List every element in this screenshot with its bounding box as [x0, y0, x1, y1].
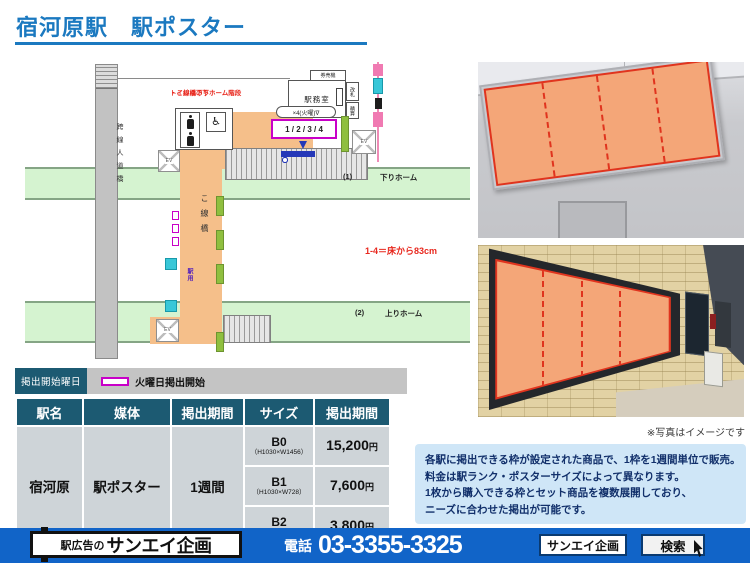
arrow-down-icon: [299, 141, 307, 149]
floor-signboard: [704, 350, 723, 387]
price-unit: 円: [369, 442, 378, 452]
station-use-label: 駅用: [185, 268, 194, 282]
poster-chip-cyan: [373, 78, 383, 94]
header-period: 掲出期間: [172, 399, 243, 425]
table-header-row: 駅名 媒体 掲出期間 サイズ 掲出期間: [17, 399, 389, 425]
bench-green: [216, 332, 224, 352]
bench-green: [216, 196, 224, 216]
brand-name: サンエイ企画: [107, 532, 212, 558]
overpass-label: 跨線人道橋: [103, 123, 124, 188]
poster-chip-pink: [373, 64, 383, 76]
third-poster-case: [715, 301, 731, 348]
restroom-box: [180, 112, 200, 148]
header-media: 媒体: [84, 399, 170, 425]
female-icon: [187, 132, 194, 146]
photo-brick-wall: [478, 245, 744, 417]
info-line: 料金は駅ランク・ポスターサイズによって異なります。: [425, 469, 736, 486]
frame-count-label: ×4(火曜)∇: [276, 106, 336, 118]
legend-item-label: 火曜日掲出開始: [135, 374, 205, 389]
poster-slot-magenta: [172, 211, 179, 220]
poster-chip-pink: [373, 112, 383, 127]
male-icon: [187, 115, 194, 129]
toilet-note-line2: ・こ線橋の下: [170, 89, 209, 98]
header-size: サイズ: [245, 399, 313, 425]
brand-prefix: 駅広告の: [61, 537, 105, 553]
elevator-icon: EV: [156, 319, 179, 342]
info-line: 各駅に掲出できる枠が設定された商品で、1枠を1週間単位で販売。: [425, 452, 736, 469]
wall-line: [117, 78, 290, 79]
magenta-swatch: [101, 377, 129, 386]
size-name: B1: [246, 476, 312, 489]
phone-block: 電話 03-3355-3325: [284, 528, 462, 563]
search-input[interactable]: [539, 534, 627, 556]
height-note: 1-4＝床から83cm: [365, 244, 437, 257]
header-station: 駅名: [17, 399, 82, 425]
fence-bar: [341, 116, 349, 152]
platform-down-number: (1): [343, 172, 352, 181]
header-price: 掲出期間: [315, 399, 389, 425]
panel-divider: [651, 68, 665, 161]
bench-green: [216, 230, 224, 250]
platform-up-label: 上りホーム: [385, 308, 422, 319]
price-cell: 7,600円: [315, 467, 389, 505]
gate-box: 改札: [346, 82, 359, 101]
phone-number: 03-3355-3325: [318, 531, 462, 560]
photo-caption: ※写真はイメージです: [560, 424, 745, 439]
stairs-lower: [223, 315, 271, 343]
panel-divider: [541, 83, 555, 176]
price-value: 15,200: [326, 437, 369, 453]
poster-frame-marker: 1 / 2 / 3 / 4: [271, 119, 337, 139]
price-unit: 円: [365, 482, 374, 492]
small-red-poster: [710, 314, 716, 329]
info-line: ニーズに合わせた掲出が可能です。: [425, 502, 736, 519]
board-orange-area: [486, 62, 718, 183]
legend-title: 掲出開始曜日: [15, 368, 87, 394]
floor: [616, 379, 744, 417]
station-map: 跨線人道橋 EV EV EV 駅務室 券売機 改札 精算 ×4(火曜)∇ 1 /…: [25, 56, 470, 368]
price-table: 駅名 媒体 掲出期間 サイズ 掲出期間 宿河原 駅ポスター 1週間 B0 （H1…: [15, 397, 391, 547]
size-cell: B1 （H1030×W728）: [245, 467, 313, 505]
poster-slot-cyan: [165, 300, 177, 312]
panel-divider: [596, 76, 610, 169]
size-name: B0: [246, 436, 312, 449]
accessible-icon: ♿: [206, 112, 226, 132]
bridge-label: こ線橋: [199, 194, 210, 239]
bench-green: [216, 264, 224, 284]
poster-chip-dark: [375, 98, 382, 109]
elevator-icon: EV: [352, 130, 376, 154]
price-cell: 15,200円: [315, 427, 389, 465]
platform-down-label: 下りホーム: [380, 172, 417, 183]
title-underline: [15, 42, 367, 45]
phone-label: 電話: [284, 536, 312, 556]
poster-slot-magenta: [172, 237, 179, 246]
ticket-machine-box: 券売機: [310, 70, 346, 81]
overpass-stairs: [96, 65, 117, 89]
size-dims: （H1030×W1456）: [246, 449, 312, 456]
wall-door: [558, 201, 627, 238]
toilet-block: ♿: [175, 108, 233, 150]
table-row: 宿河原 駅ポスター 1週間 B0 （H1030×W1456） 15,200円: [17, 427, 389, 465]
photo-station-wall: [478, 62, 744, 238]
page: 宿河原駅 駅ポスター 跨線人道橋 EV EV EV 駅務室 券売機 改札 精算 …: [0, 0, 750, 563]
brand-signboard: 駅広告の サンエイ企画: [30, 531, 242, 558]
legend-bar: 掲出開始曜日 火曜日掲出開始: [15, 368, 407, 394]
product-info-box: 各駅に掲出できる枠が設定された商品で、1枠を1週間単位で販売。 料金は駅ランク・…: [415, 444, 746, 524]
platform-up-number: (2): [355, 308, 364, 317]
overpass-tower: 跨線人道橋: [95, 64, 118, 359]
page-title: 宿河原駅 駅ポスター: [16, 10, 246, 42]
size-dims: （H1030×W728）: [246, 489, 312, 496]
panel-divider: [542, 261, 544, 397]
price-value: 7,600: [330, 477, 365, 493]
ticket-gate-bar: [281, 151, 315, 157]
poster-slot-magenta: [172, 224, 179, 233]
footer-bar: 駅広告の サンエイ企画 電話 03-3355-3325 検索: [0, 528, 750, 563]
second-poster-case: [685, 292, 709, 357]
poster-slot-cyan: [165, 258, 177, 270]
elevator-icon: EV: [158, 150, 180, 172]
size-cell: B0 （H1030×W1456）: [245, 427, 313, 465]
info-line: 1枚から購入できる枠とセット商品を複数展開しており、: [425, 485, 736, 502]
poster-board-highlight: [479, 62, 725, 190]
